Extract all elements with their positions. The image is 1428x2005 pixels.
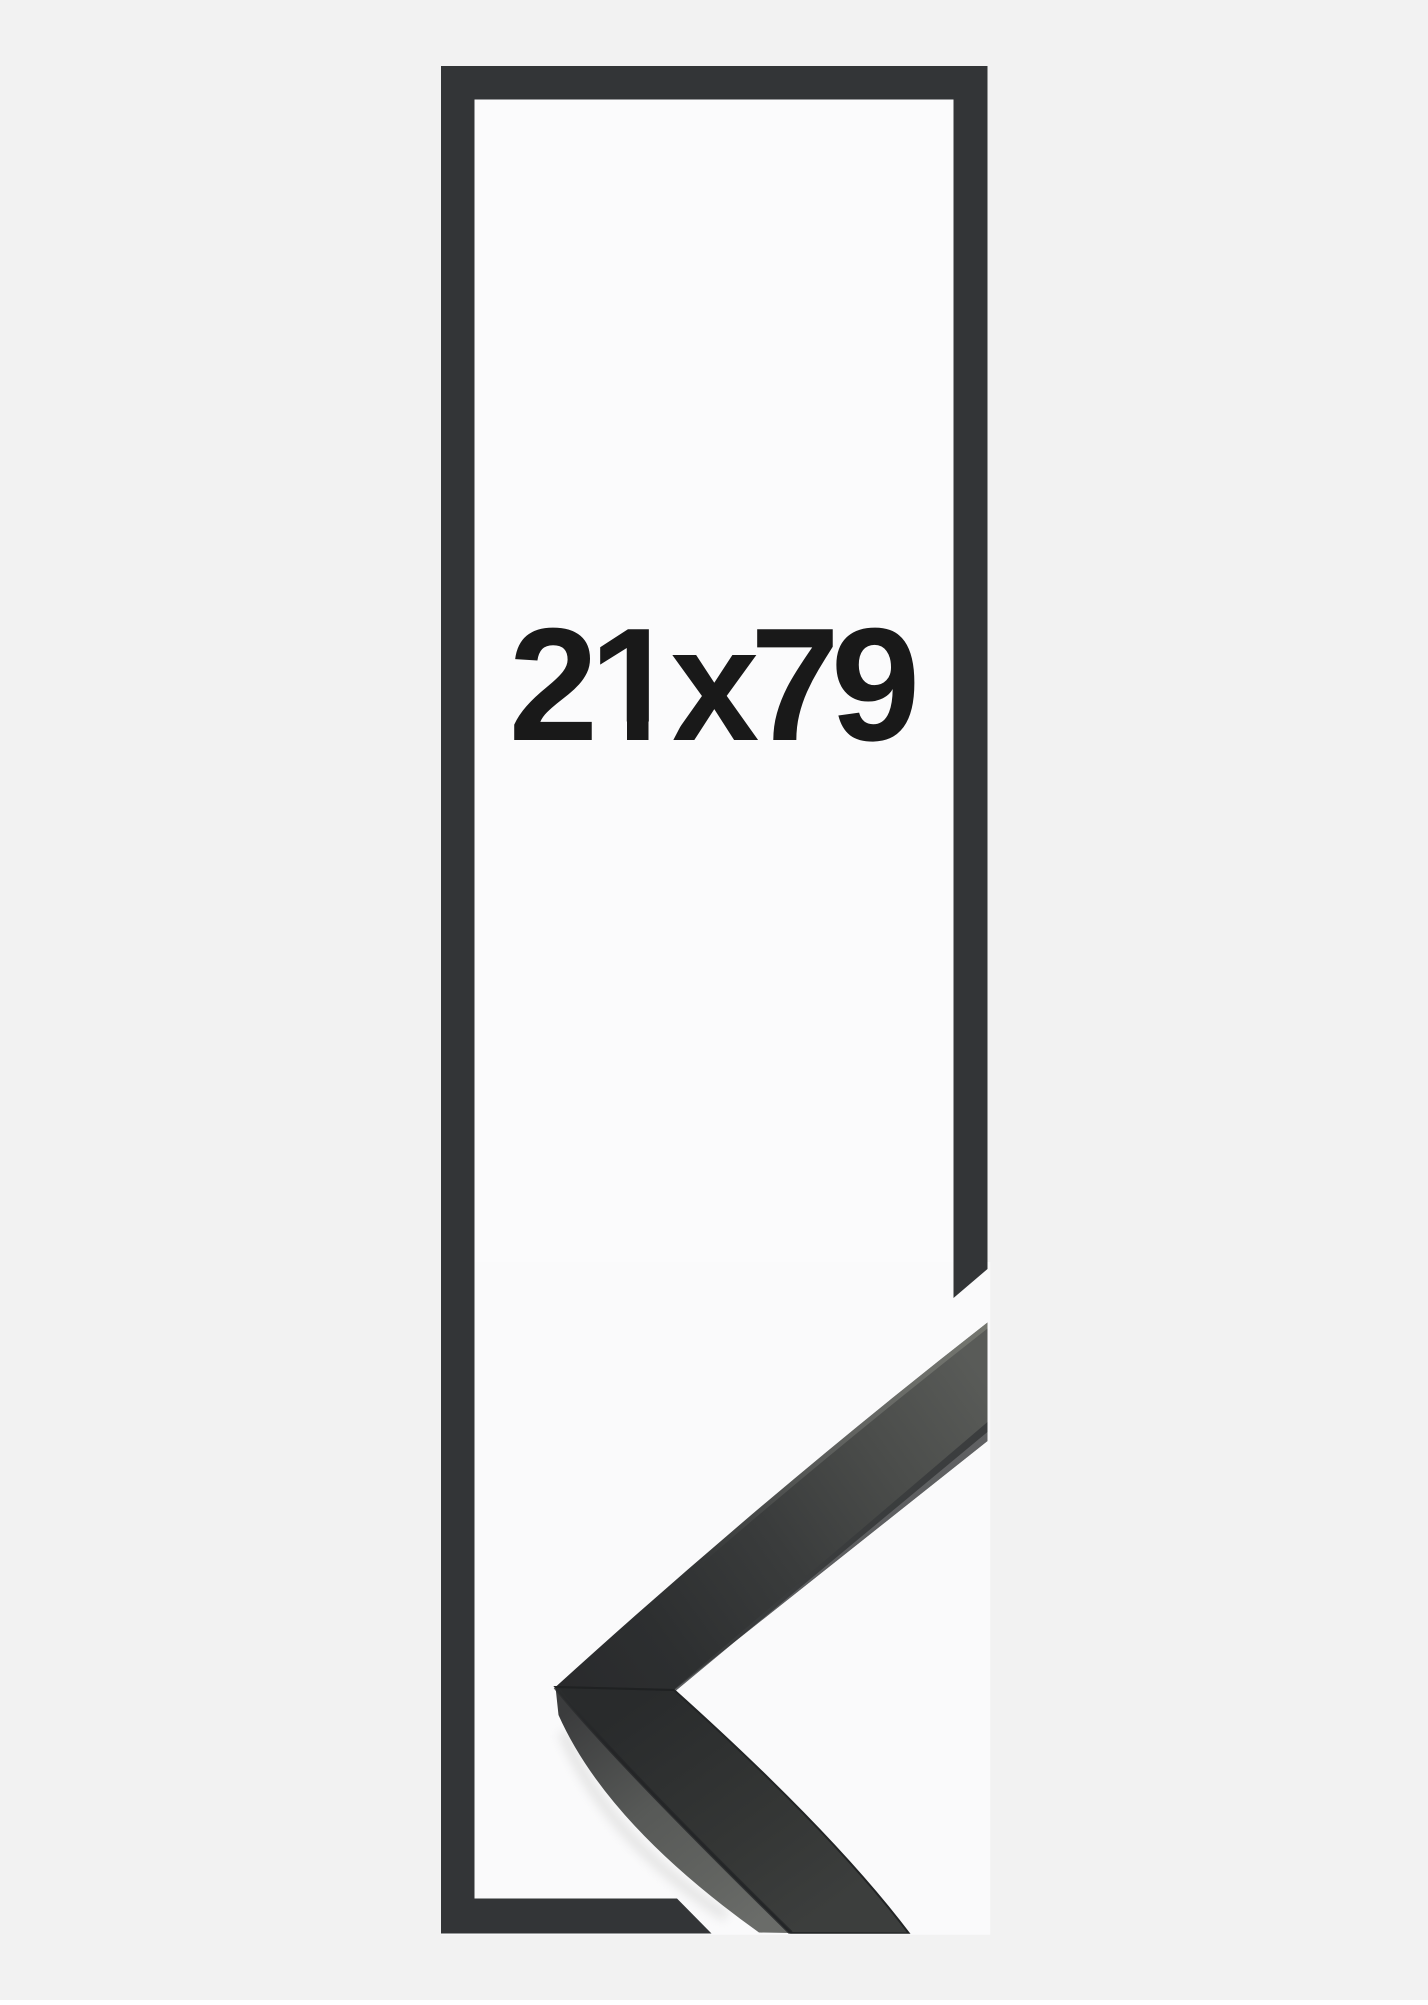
svg-text:21x79: 21x79 <box>509 595 915 775</box>
